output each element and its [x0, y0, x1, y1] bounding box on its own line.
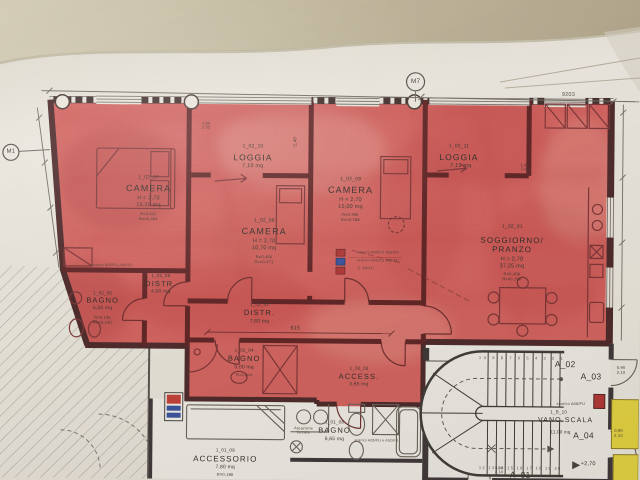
room-bagno3-code: 1_01_08	[325, 419, 344, 424]
room-accessorio-r: R=0,186	[217, 473, 234, 478]
dim-loggia-depth: 2,40	[292, 137, 297, 147]
room-bagno2-r: R=0,204	[236, 373, 252, 378]
room-bagno3-name: BAGNO	[318, 427, 351, 436]
room-vano-name: VANO SCALA	[538, 417, 593, 426]
room-camera2-code: 1_02_08	[254, 218, 275, 224]
dim-615: 615	[290, 326, 300, 333]
door-tag-2: 0,90 2,10	[614, 429, 623, 439]
room-camera1-name: CAMERA	[126, 183, 171, 194]
window-tag-1: 1,45 2,00	[521, 163, 529, 172]
room-loggia1-code: 1_02_10	[243, 144, 264, 150]
window-tag-2: 1,80 2,02	[202, 121, 210, 130]
plan-drawing: 1_02_07 CAMERA H = 2,70 15,35 mq R=0,441…	[0, 0, 640, 480]
stair-numbers-bottom: 12 13 14 15 16 17 18 19 20	[479, 466, 562, 471]
unit-a03: A_03	[581, 371, 602, 381]
room-camera2-height: H = 2,70	[253, 238, 276, 245]
room-camera1-area: 15,35 mq	[136, 202, 161, 209]
room-bagno2-area: 5,00 mq	[234, 365, 254, 371]
room-loggia2-name: LOGGIA	[439, 152, 478, 162]
legend-line-3: F. ARIFU	[358, 266, 374, 270]
room-distr2-name: DISTR.	[244, 309, 275, 318]
room-bagno1-area: 5,50 mq	[93, 306, 113, 312]
marker-m1: M1	[7, 149, 16, 156]
room-distr2-area: 7,60 mq	[250, 319, 270, 325]
room-soggiorno-rv: Rv=0,196	[502, 277, 521, 282]
staircase	[420, 351, 564, 476]
note-scarico-bagno1: scarico A05/FU,A06/FU	[91, 263, 133, 268]
room-bagno2-name: BAGNO	[228, 355, 261, 364]
room-loggia2-code: 1_02_11	[449, 144, 470, 150]
room-distr2-code: 1_02_02	[250, 302, 269, 307]
room-bagno2-code: 1_02_04	[235, 348, 254, 353]
room-loggia1-area: 7,10 mq	[242, 163, 263, 170]
room-camera1-rv: Rv=0,464	[139, 217, 158, 222]
room-accessorio-area: 7,80 mq	[215, 465, 235, 471]
dim-9203: 9203	[562, 92, 575, 99]
room-soggiorno-area: 37,25 mq	[500, 263, 525, 270]
room-vano-area: 11,00 mq	[550, 429, 570, 434]
door-tag-1: 0,90 2,10	[617, 366, 626, 376]
room-bagno3-area: 6,65 mq	[325, 437, 345, 443]
unit-a04: A_04	[573, 430, 594, 440]
marker-m7: M7	[411, 78, 421, 86]
room-camera1-code: 1_02_07	[138, 175, 159, 181]
room-camera3-code: 1_02_09	[340, 177, 361, 183]
room-camera3-name: CAMERA	[328, 185, 373, 196]
room-soggiorno-height: H = 2,70	[501, 256, 524, 263]
room-distr1-code: 1_02_06	[151, 273, 170, 278]
room-camera3-rv: Rv=0,188	[341, 218, 360, 223]
floor-plan-photo: 1_02_07 CAMERA H = 2,70 15,35 mq R=0,441…	[0, 0, 640, 480]
room-vano-code: 1_B_10	[550, 409, 567, 414]
room-soggiorno-code: 1_02_01	[502, 225, 523, 231]
room-camera2-area: 10,70 mq	[252, 245, 277, 252]
stair-numbers-top: 10 9 8 7 6 5 4 3 2 1	[479, 356, 566, 361]
room-access-area: 3,65 mq	[349, 382, 369, 388]
note-scarico-vano: scarico A06/FU	[556, 402, 585, 407]
room-camera1-height: H = 2,70	[137, 195, 160, 202]
plan-vector	[0, 0, 640, 480]
room-accessorio-code: 1_01_09	[216, 447, 235, 452]
room-camera2-name: CAMERA	[242, 226, 287, 237]
room-loggia2-area: 7,15 mq	[450, 163, 471, 170]
room-bagno1-rv: Rv=0,100	[93, 321, 112, 326]
electrical-panel-icon	[165, 393, 183, 421]
legend-line-1: scarico A05/FU A06/FU	[357, 250, 399, 255]
legend-line-2: scarico A05/EU A06/EU	[357, 258, 399, 263]
room-camera3-area: 15,00 mq	[338, 204, 363, 211]
room-loggia1-name: LOGGIA	[233, 152, 272, 162]
room-access-code: 1_02_03	[350, 366, 369, 371]
room-soggiorno-name2: PRANZO	[492, 245, 532, 255]
note-scarico-bagno3: scarico A05/FU e A02/FU	[354, 438, 398, 443]
level-mark: +2,70	[581, 461, 596, 468]
room-camera2-rv: Rv=0,471	[255, 260, 274, 265]
room-distr1-area: 4,00 mq	[151, 290, 171, 296]
room-camera3-height: H = 2,70	[339, 197, 362, 204]
note-areazione: Areazione forzata	[294, 426, 313, 435]
room-accessorio-name: ACCESSORIO	[193, 454, 257, 464]
meter-box-icon	[594, 394, 605, 408]
